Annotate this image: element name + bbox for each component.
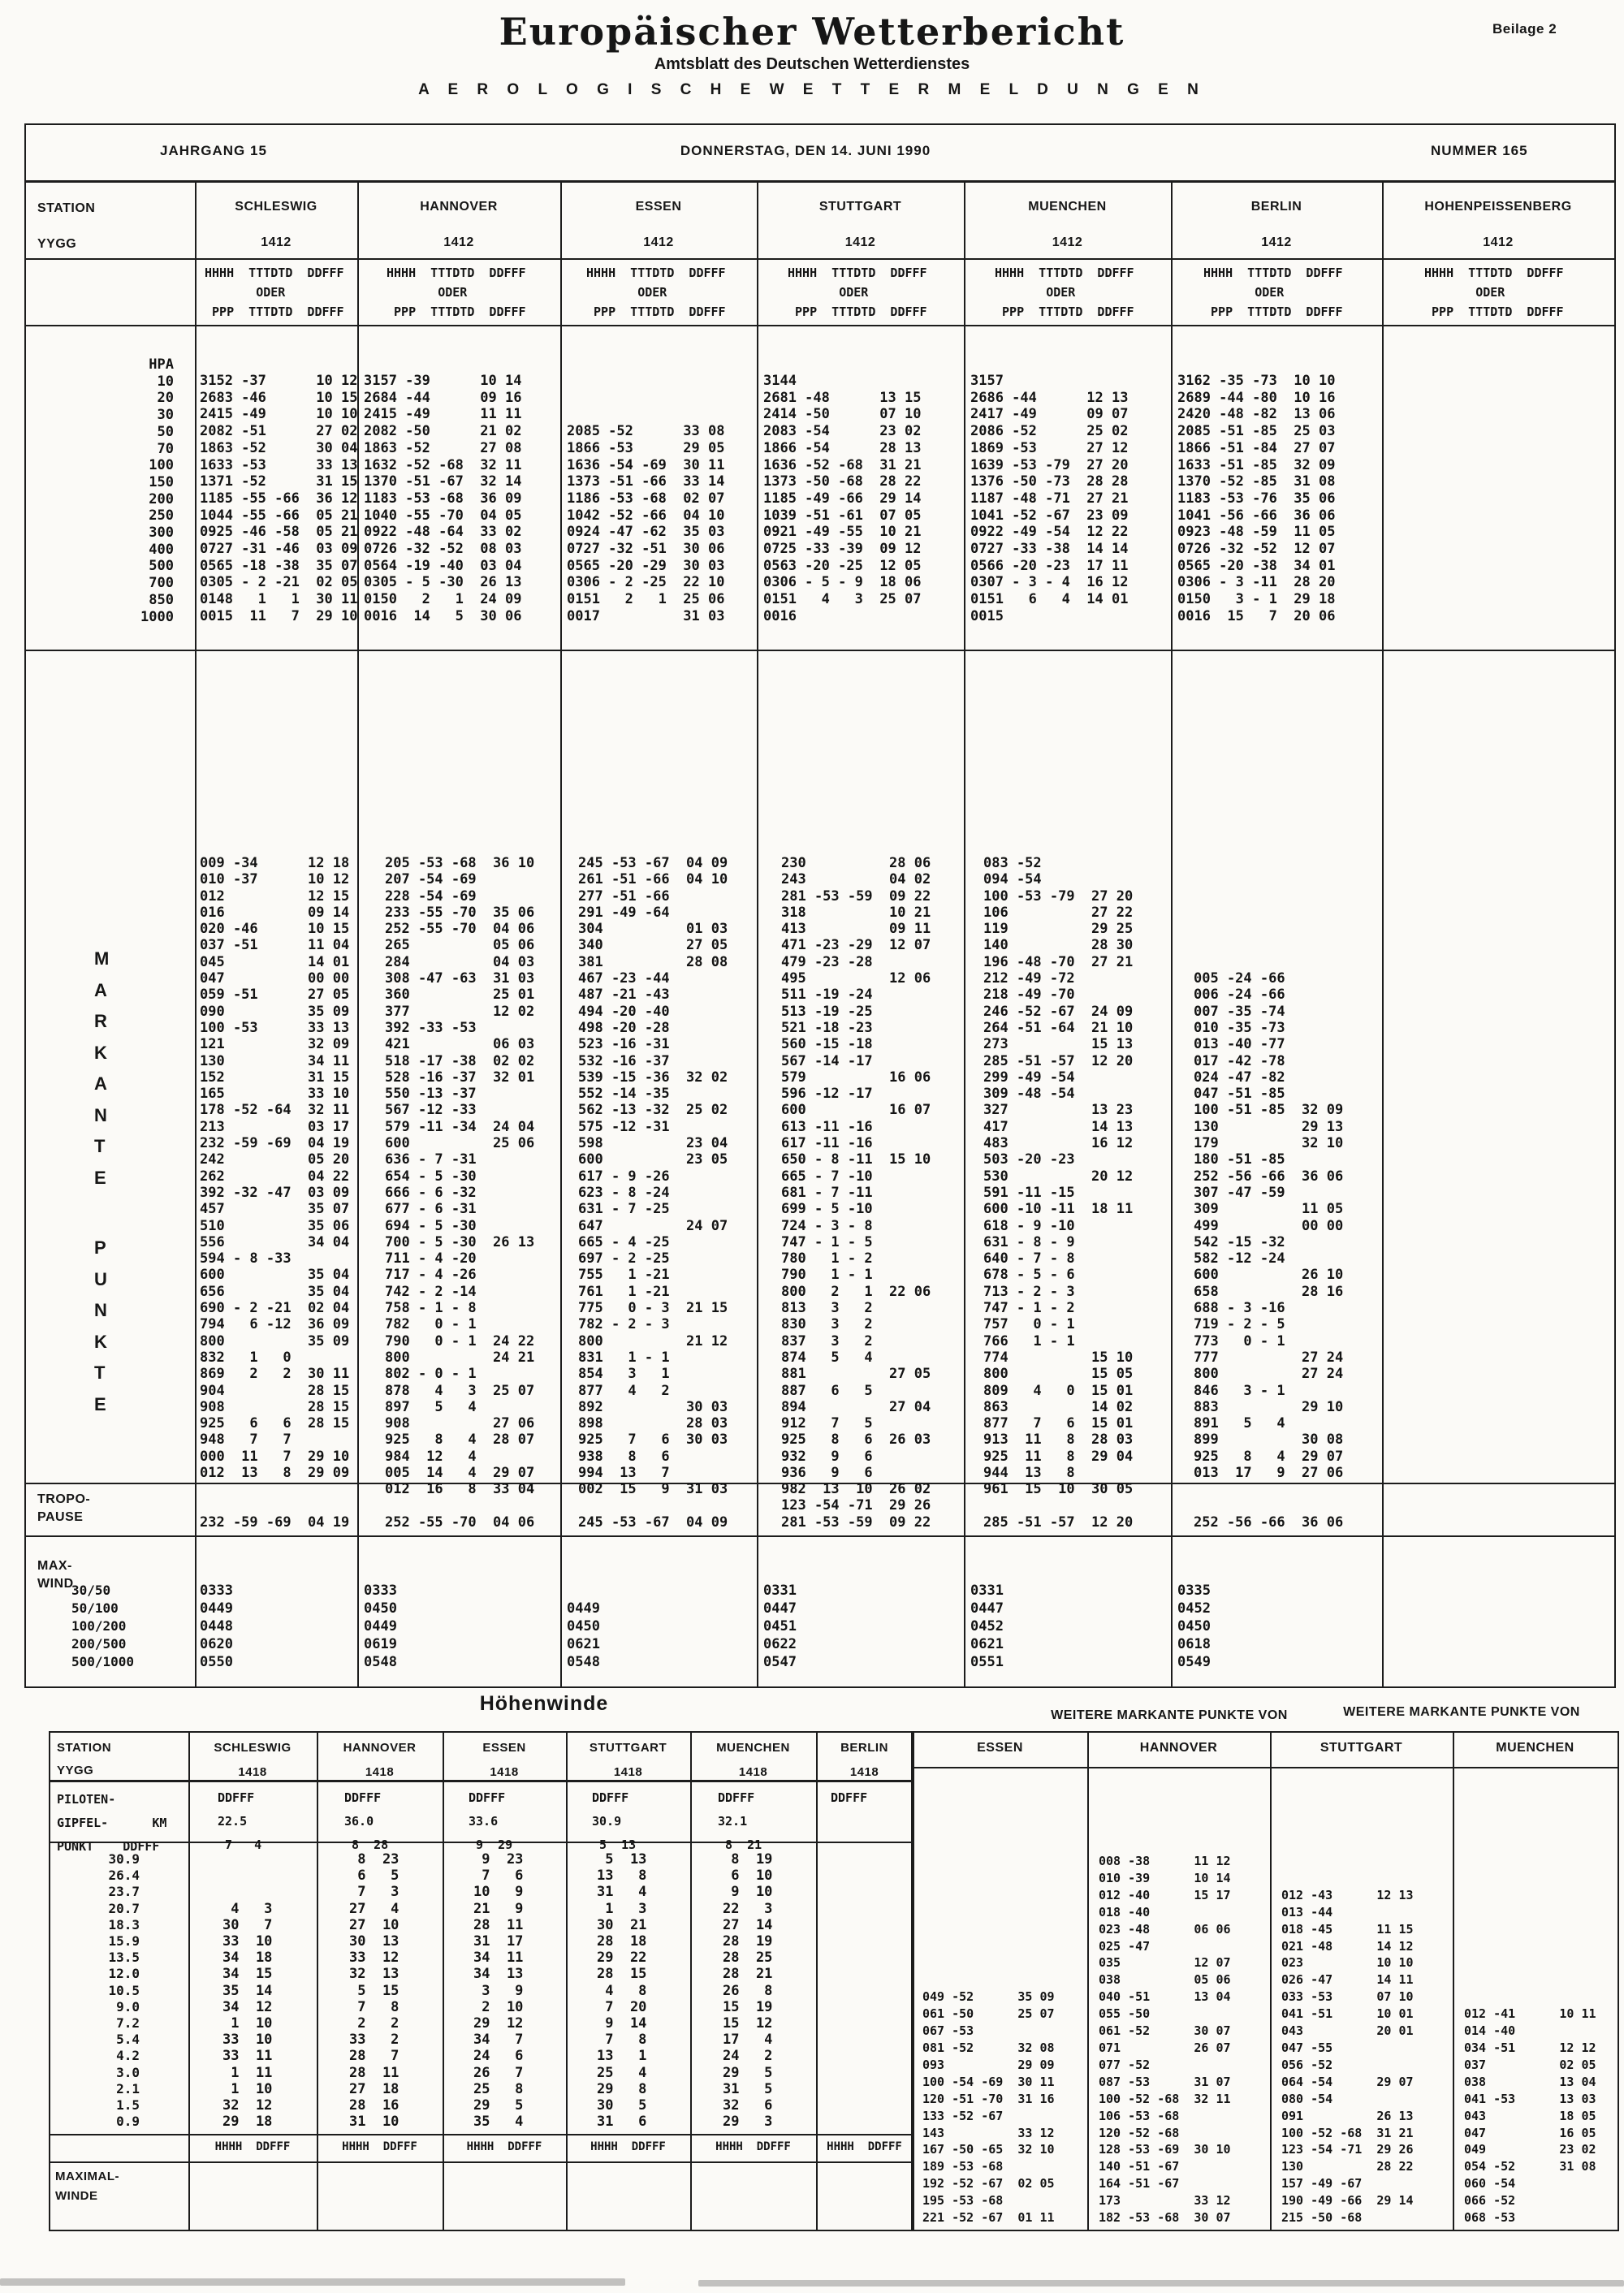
station-yygg: 1412: [1171, 235, 1382, 250]
maxwind-data: 0449 0450 0621 0548: [567, 1582, 600, 1671]
markante-punkte-data: 005 -24 -66 006 -24 -66 007 -35 -74 010 …: [1194, 855, 1343, 1481]
wind-data: 8 19 6 10 9 10 22 3 27 14 28 19 28 25 28…: [723, 1851, 772, 2130]
station-name: MUENCHEN: [1453, 1741, 1618, 1755]
markante-vertical-label: M A R K A N T E: [94, 944, 109, 1194]
weitere-column-muenchen: MUENCHEN 012 -41 10 11 014 -40 034 -51 1…: [1453, 1733, 1618, 2230]
station-name: STUTTGART: [566, 1741, 690, 1755]
station-column-stuttgart: STUTTGART 1412 HHHH TTTDTD DDFFF ODER PP…: [757, 180, 964, 1686]
markante-punkte-data: 205 -53 -68 36 10 207 -54 -69 228 -54 -6…: [385, 855, 534, 1498]
column-code-header: HHHH TTTDTD DDFFF ODER PPP TTTDTD DDFFF: [586, 263, 726, 322]
weitere-column-essen: ESSEN 049 -52 35 09 061 -50 25 07 067 -5…: [913, 1733, 1087, 2230]
piloten-values: DDFFF: [831, 1786, 867, 1810]
hhhh-ddfff-header: HHHH DDFFF: [816, 2139, 913, 2156]
maxwind-label: MAX-: [37, 1559, 72, 1574]
station-column-hohenpeissenberg: HOHENPEISSENBERG 1412 HHHH TTTDTD DDFFF …: [1382, 180, 1614, 1686]
page-title: Europäischer Wetterbericht: [325, 10, 1299, 54]
station-column-muenchen: MUENCHEN 1412 HHHH TTTDTD DDFFF ODER PPP…: [964, 180, 1171, 1686]
weitere-column-stuttgart: STUTTGART 012 -43 12 13 013 -44 018 -45 …: [1270, 1733, 1453, 2230]
maxwind-data: 0333 0450 0449 0619 0548: [364, 1582, 397, 1671]
hw-column-stuttgart: STUTTGART 1418 DDFFF 30.9 5 13 5 13 13 8…: [566, 1733, 690, 2230]
hpa-data: 2085 -52 33 08 1866 -53 29 05 1636 -54 -…: [567, 373, 724, 625]
tropopause-data: 232 -59 -69 04 19: [200, 1497, 349, 1531]
station-name: HANNOVER: [357, 200, 560, 214]
station-column-essen: ESSEN 1412 HHHH TTTDTD DDFFF ODER PPP TT…: [560, 180, 757, 1686]
piloten-values: DDFFF 36.0 8 28: [344, 1786, 388, 1857]
station-name: HANNOVER: [1087, 1741, 1270, 1755]
station-yygg: 1418: [443, 1765, 566, 1779]
maxwind-data: 0331 0447 0452 0621 0551: [970, 1582, 1004, 1671]
station-label: STATION: [37, 201, 95, 216]
hw-column-berlin: BERLIN 1418 DDFFF HHHH DDFFF: [816, 1733, 913, 2230]
hoehenwinde-title: Höhenwinde: [438, 1692, 650, 1716]
hw-column-muenchen: MUENCHEN 1418 DDFFF 32.1 8 21 8 19 6 10 …: [690, 1733, 816, 2230]
station-name: ESSEN: [560, 200, 757, 214]
yygg-label: YYGG: [57, 1764, 93, 1777]
station-name: BERLIN: [1171, 200, 1382, 214]
page-subtitle: Amtsblatt des Deutschen Wetterdienstes: [406, 55, 1218, 74]
station-name: HANNOVER: [317, 1741, 443, 1755]
column-code-header: HHHH TTTDTD DDFFF ODER PPP TTTDTD DDFFF: [788, 263, 927, 322]
tropopause-label: TROPO-: [37, 1492, 90, 1507]
column-code-header: HHHH TTTDTD DDFFF ODER PPP TTTDTD DDFFF: [1203, 263, 1343, 322]
hhhh-ddfff-header: HHHH DDFFF: [443, 2139, 566, 2156]
maxwind-label-2: WIND: [37, 1577, 74, 1591]
wind-data: 4 3 30 7 33 10 34 18 34 15 35 14 34 12 1…: [222, 1851, 272, 2130]
column-code-header: HHHH TTTDTD DDFFF ODER PPP TTTDTD DDFFF: [387, 263, 526, 322]
station-column-hannover: HANNOVER 1412 HHHH TTTDTD DDFFF ODER PPP…: [357, 180, 560, 1686]
hpa-data: 3157 -39 10 14 2684 -44 09 16 2415 -49 1…: [364, 373, 521, 625]
tropopause-data: 285 -51 -57 12 20: [983, 1497, 1133, 1531]
issue-date: DONNERSTAG, DEN 14. JUNI 1990: [603, 143, 1009, 159]
station-yygg: 1418: [690, 1765, 816, 1779]
issue-jahrgang: JAHRGANG 15: [160, 143, 267, 159]
tropopause-data: 245 -53 -67 04 09: [578, 1497, 728, 1531]
station-name: ESSEN: [443, 1741, 566, 1755]
yygg-label: YYGG: [37, 237, 76, 252]
weitere-title-right: WEITERE MARKANTE PUNKTE VON: [1336, 1705, 1587, 1720]
scanned-weather-bulletin-page: { "header": { "title": "Europäischer Wet…: [0, 0, 1624, 2293]
hw-column-essen: ESSEN 1418 DDFFF 33.6 9 29 9 23 7 6 10 9…: [443, 1733, 566, 2230]
aerological-report-table: JAHRGANG 15 DONNERSTAG, DEN 14. JUNI 199…: [24, 123, 1616, 1688]
station-yygg: 1412: [964, 235, 1171, 250]
station-yygg: 1418: [317, 1765, 443, 1779]
scan-artifact: [0, 2278, 625, 2286]
wind-data: 5 13 13 8 31 4 1 3 30 21 28 18 29 22 28 …: [597, 1851, 646, 2130]
tropopause-data: 252 -55 -70 04 06: [385, 1497, 534, 1531]
maxwind-layer-labels: 30/50 50/100 100/200 200/500 500/1000: [71, 1582, 134, 1671]
maxwind-data: 0333 0449 0448 0620 0550: [200, 1582, 233, 1671]
piloten-values: DDFFF 22.5 7 4: [218, 1786, 261, 1857]
piloten-values: DDFFF 33.6 9 29: [469, 1786, 512, 1857]
station-yygg: 1418: [188, 1765, 317, 1779]
markante-punkte-data: 230 28 06 243 04 02 281 -53 -59 09 22 31…: [781, 855, 931, 1498]
hpa-data: 3144 2681 -48 13 15 2414 -50 07 10 2083 …: [763, 373, 921, 625]
markante-punkte-data: 009 -34 12 18 010 -37 10 12 012 12 15 01…: [200, 855, 349, 1481]
station-name: ESSEN: [913, 1741, 1087, 1755]
tropopause-data: 123 -54 -71 29 26 281 -53 -59 09 22: [781, 1497, 931, 1531]
pressure-level-labels: HPA 10 20 30 50 70 100 150 200 250 300 4…: [26, 356, 174, 625]
weitere-markante-punkte-table: ESSEN 049 -52 35 09 061 -50 25 07 067 -5…: [911, 1731, 1619, 2231]
hhhh-ddfff-header: HHHH DDFFF: [188, 2139, 317, 2156]
wind-data: 9 23 7 6 10 9 21 9 28 11 31 17 34 11 34 …: [473, 1851, 523, 2130]
maximal-winde-label: MAXIMAL-: [55, 2170, 119, 2183]
hhhh-ddfff-header: HHHH DDFFF: [317, 2139, 443, 2156]
weitere-punkte-data: 012 -43 12 13 013 -44 018 -45 11 15 021 …: [1281, 1853, 1414, 2226]
station-column-schleswig: SCHLESWIG 1412 HHHH TTTDTD DDFFF ODER PP…: [195, 180, 357, 1686]
punkte-vertical-label: P U N K T E: [94, 1233, 107, 1420]
hpa-data: 3162 -35 -73 10 10 2689 -44 -80 10 16 24…: [1177, 373, 1335, 625]
issue-number: NUMMER 165: [1431, 143, 1528, 159]
altitude-labels: 30.9 26.4 23.7 20.7 18.3 15.9 13.5 12.0 …: [50, 1851, 140, 2130]
row-label-column: STATION YYGG HPA 10 20 30 50 70 100 150 …: [26, 180, 195, 1686]
tropopause-label-2: PAUSE: [37, 1510, 83, 1525]
maximal-winde-label-2: WINDE: [55, 2189, 98, 2203]
hoehenwinde-table: STATION YYGG PILOTEN- GIPFEL- KM PUNKT D…: [49, 1731, 914, 2231]
station-yygg: 1412: [560, 235, 757, 250]
piloten-values: DDFFF 30.9 5 13: [592, 1786, 636, 1857]
hw-label-column: STATION YYGG PILOTEN- GIPFEL- KM PUNKT D…: [50, 1733, 188, 2230]
station-name: BERLIN: [816, 1741, 913, 1755]
hpa-data: 3152 -37 10 12 2683 -46 10 15 2415 -49 1…: [200, 373, 357, 625]
column-code-header: HHHH TTTDTD DDFFF ODER PPP TTTDTD DDFFF: [205, 263, 344, 322]
hw-column-schleswig: SCHLESWIG 1418 DDFFF 22.5 7 4 4 3 30 7 3…: [188, 1733, 317, 2230]
hhhh-ddfff-header: HHHH DDFFF: [690, 2139, 816, 2156]
station-name: STUTTGART: [757, 200, 964, 214]
markante-punkte-data: 245 -53 -67 04 09 261 -51 -66 04 10 277 …: [578, 855, 728, 1498]
piloten-gipfel-punkt-label: PILOTEN- GIPFEL- KM PUNKT DDFFF: [57, 1788, 166, 1859]
station-yygg: 1418: [816, 1765, 913, 1779]
hw-column-hannover: HANNOVER 1418 DDFFF 36.0 8 28 8 23 6 5 7…: [317, 1733, 443, 2230]
station-name: STUTTGART: [1270, 1741, 1453, 1755]
station-name: MUENCHEN: [690, 1741, 816, 1755]
station-yygg: 1412: [757, 235, 964, 250]
station-label: STATION: [57, 1741, 111, 1755]
column-code-header: HHHH TTTDTD DDFFF ODER PPP TTTDTD DDFFF: [1424, 263, 1564, 322]
piloten-values: DDFFF 32.1 8 21: [718, 1786, 762, 1857]
wind-data: 8 23 6 5 7 3 27 4 27 10 30 13 33 12 32 1…: [349, 1851, 399, 2130]
station-name: SCHLESWIG: [195, 200, 357, 214]
hhhh-ddfff-header: HHHH DDFFF: [566, 2139, 690, 2156]
scan-artifact: [698, 2280, 1624, 2287]
weitere-punkte-data: 049 -52 35 09 061 -50 25 07 067 -53 081 …: [922, 1853, 1055, 2226]
station-name: SCHLESWIG: [188, 1741, 317, 1755]
station-name: HOHENPEISSENBERG: [1382, 200, 1614, 214]
hpa-data: 3157 2686 -44 12 13 2417 -49 09 07 2086 …: [970, 373, 1128, 625]
weitere-punkte-data: 012 -41 10 11 014 -40 034 -51 12 12 037 …: [1464, 1853, 1596, 2226]
weitere-punkte-data: 008 -38 11 12 010 -39 10 14 012 -40 15 1…: [1099, 1853, 1231, 2226]
column-code-header: HHHH TTTDTD DDFFF ODER PPP TTTDTD DDFFF: [995, 263, 1134, 322]
station-yygg: 1412: [357, 235, 560, 250]
station-yygg: 1418: [566, 1765, 690, 1779]
station-yygg: 1412: [195, 235, 357, 250]
station-name: MUENCHEN: [964, 200, 1171, 214]
maxwind-data: 0331 0447 0451 0622 0547: [763, 1582, 797, 1671]
station-yygg: 1412: [1382, 235, 1614, 250]
weitere-title-left: WEITERE MARKANTE PUNKTE VON: [1043, 1708, 1295, 1723]
tropopause-data: 252 -56 -66 36 06: [1194, 1497, 1343, 1531]
station-column-berlin: BERLIN 1412 HHHH TTTDTD DDFFF ODER PPP T…: [1171, 180, 1382, 1686]
maxwind-data: 0335 0452 0450 0618 0549: [1177, 1582, 1211, 1671]
weitere-column-hannover: HANNOVER 008 -38 11 12 010 -39 10 14 012…: [1087, 1733, 1270, 2230]
aerologische-heading: A E R O L O G I S C H E W E T T E R M E …: [325, 81, 1299, 99]
markante-punkte-data: 083 -52 094 -54 100 -53 -79 27 20 106 27…: [983, 855, 1133, 1498]
beilage-note: Beilage 2: [1492, 21, 1557, 37]
